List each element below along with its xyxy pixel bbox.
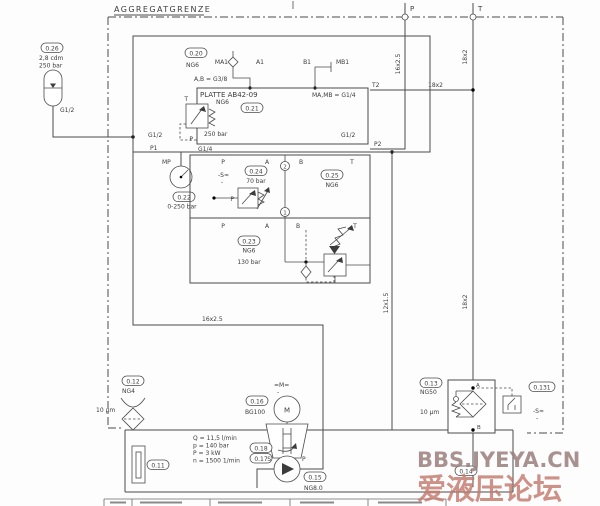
- return-filter-size: NG50: [420, 389, 437, 396]
- check-valve-icon: [301, 266, 311, 278]
- coupling-ref-bottom: 0.17: [254, 456, 268, 463]
- measuring-point-mb1: B1 MB1: [303, 59, 349, 90]
- level-gauge: 0.11: [132, 446, 169, 483]
- platte-block: PLATTE AB42-09 NG6 0.21 MA,MB = G1/4 G1/…: [180, 88, 368, 144]
- coupling-ref-top: 0.18: [254, 445, 268, 452]
- filter-port-b: B: [477, 425, 481, 431]
- pipe-pressure-line: [133, 152, 323, 469]
- pressure-gauge: MP 0.22 0-250 bar: [162, 152, 197, 211]
- valve24-tag: -S≈: [218, 172, 229, 179]
- port-t2-label: T2: [371, 82, 380, 89]
- pipe-label-t-lower: 18x2: [462, 294, 469, 309]
- manifold-ref: 0.20: [189, 50, 203, 57]
- port-p-label: P: [410, 5, 414, 13]
- manifold-g12-left: G1/2: [148, 132, 162, 139]
- pipe-network: [53, 20, 475, 488]
- motor-symbol: M: [284, 407, 290, 415]
- pump-size: NG8.0: [304, 485, 323, 492]
- valve24-ref: 0.24: [249, 168, 263, 175]
- valve24-tag2: -: [221, 179, 223, 186]
- spring-icon: [209, 109, 215, 126]
- pipe-label-p: 16x2.5: [395, 53, 402, 74]
- indicator-tag: -S≈: [533, 408, 544, 415]
- return-filter-ref: 0.13: [424, 380, 438, 387]
- forum-watermark: BBS.JYEYA.CN 爱液压论坛: [417, 448, 580, 506]
- bell-housing-icon: [266, 424, 308, 458]
- watermark-url: BBS.JYEYA.CN: [417, 448, 580, 472]
- port-t-label: T: [477, 5, 483, 13]
- a1-label: A1: [256, 59, 264, 66]
- sequence-valve-0-23: 0.23 NG6 130 bar: [237, 225, 370, 283]
- rail-top-t: T: [349, 159, 354, 166]
- manifold-ports-mamb: MA,MB = G1/4: [312, 92, 356, 99]
- minimess-icon: [228, 57, 238, 67]
- rail-mid-p: P: [221, 223, 225, 230]
- pipe-label-pressure: 16x2.5: [202, 316, 223, 323]
- pump-suction-label: S: [267, 456, 271, 463]
- pipe-suction-line: [257, 469, 274, 488]
- pipe-label-t-upper: 18x2: [462, 49, 469, 64]
- motor-tag2: -: [277, 389, 279, 396]
- position-1: 1: [283, 210, 287, 216]
- return-filter-micron: 10 µm: [420, 409, 439, 416]
- breather-micron: 10 µm: [96, 407, 115, 414]
- motor-ref: 0.16: [250, 398, 264, 405]
- measuring-point-ma1: MA1 A1: [215, 51, 264, 90]
- pump-ref: 0.15: [308, 474, 322, 481]
- valve25-ref: 0.25: [325, 172, 339, 179]
- pilot-cone-icon: [329, 246, 340, 254]
- rail-top-p: P: [221, 159, 225, 166]
- pump-specs: Q = 11,5 l/min p = 140 bar P = 3 kW n = …: [193, 435, 240, 465]
- motor-tag: =M=: [274, 382, 289, 389]
- pump-pressure-label: P: [302, 456, 306, 463]
- manifold-size: NG6: [186, 62, 199, 69]
- accumulator-port: G1/2: [60, 107, 74, 114]
- manifold-g12-right: G1/2: [341, 132, 355, 139]
- indicator-tag2: -: [536, 415, 538, 422]
- platte-title: PLATTE AB42-09: [200, 91, 258, 99]
- watermark-cn: 爱液压论坛: [417, 472, 562, 506]
- accumulator-ref: 0.26: [45, 45, 59, 52]
- platte-pressure: 250 bar: [204, 131, 228, 138]
- b1-label: B1: [303, 59, 311, 66]
- accumulator: 0.26 2,8 cdm 250 bar G1/2: [39, 43, 74, 114]
- manifold-g14: G1/4: [198, 146, 212, 153]
- manifold-block: 0.20 NG6 A,B = G3/8 MA1 A1 B1 MB1 PLATTE…: [133, 36, 430, 153]
- rail-mid-b: B: [296, 223, 300, 230]
- breather-size: NG4: [122, 388, 135, 395]
- valve25-size: NG6: [326, 182, 339, 189]
- platte-port-p: P: [189, 136, 193, 143]
- platte-ref: 0.21: [245, 105, 259, 112]
- gauge-ref: 0.22: [177, 194, 191, 201]
- breather-filter: 0.12 NG4 10 µm: [96, 376, 145, 430]
- accumulator-pressure: 250 bar: [39, 63, 63, 70]
- valve24-port-p: P: [230, 196, 234, 203]
- valve24-pressure: 70 bar: [246, 178, 266, 185]
- rail-top-b: B: [299, 159, 303, 166]
- port-p1-label: P1: [150, 145, 158, 152]
- rail-top-a: A: [265, 159, 270, 166]
- motor-size: BG100: [245, 409, 265, 416]
- level-gauge-ref: 0.11: [151, 462, 165, 469]
- position-2: 2: [283, 164, 287, 170]
- pipe-label-leak: 12x1.5: [383, 292, 390, 313]
- schematic-drawing: AGGREGATGRENZE P T 16x2.5 18x2 18x2 18x2…: [0, 0, 600, 506]
- spec-p: p = 140 bar: [193, 443, 229, 450]
- boundary-title: AGGREGATGRENZE: [114, 5, 211, 14]
- rail-mid-a: A: [265, 223, 270, 230]
- gauge-range: 0-250 bar: [167, 204, 197, 211]
- intake-arc-icon: [121, 398, 133, 407]
- platte-size: NG6: [216, 99, 229, 106]
- spec-power: P = 3 kW: [193, 450, 221, 457]
- title-block-fragment: [104, 499, 446, 506]
- port-p2-label: P2: [374, 141, 382, 148]
- accumulator-volume: 2,8 cdm: [39, 55, 64, 62]
- mb1-label: MB1: [336, 59, 349, 66]
- manifold-ports-ab: A,B = G3/8: [194, 76, 227, 83]
- spec-q: Q = 11,5 l/min: [193, 435, 237, 442]
- valve23-pressure: 130 bar: [237, 259, 261, 266]
- reducing-valve-0-24: 0.24 70 bar -S≈ - P: [212, 166, 270, 209]
- valve-sandwich-block: P A B T 2 P A B T 1 0.24 70 bar -S≈ - P: [190, 155, 370, 283]
- platte-port-t: T: [183, 96, 188, 103]
- spec-n: n = 1500 1/min: [193, 458, 240, 465]
- valve23-ref: 0.23: [242, 238, 256, 245]
- valve23-size: NG6: [243, 248, 256, 255]
- ma1-label: MA1: [215, 59, 228, 66]
- indicator-ref: 0.131: [533, 384, 550, 391]
- breather-ref: 0.12: [126, 378, 140, 385]
- hydraulic-schematic-page: AGGREGATGRENZE P T 16x2.5 18x2 18x2 18x2…: [0, 0, 600, 506]
- mp-label: MP: [162, 159, 171, 166]
- directional-valve-0-25: 0.25 NG6: [321, 170, 343, 189]
